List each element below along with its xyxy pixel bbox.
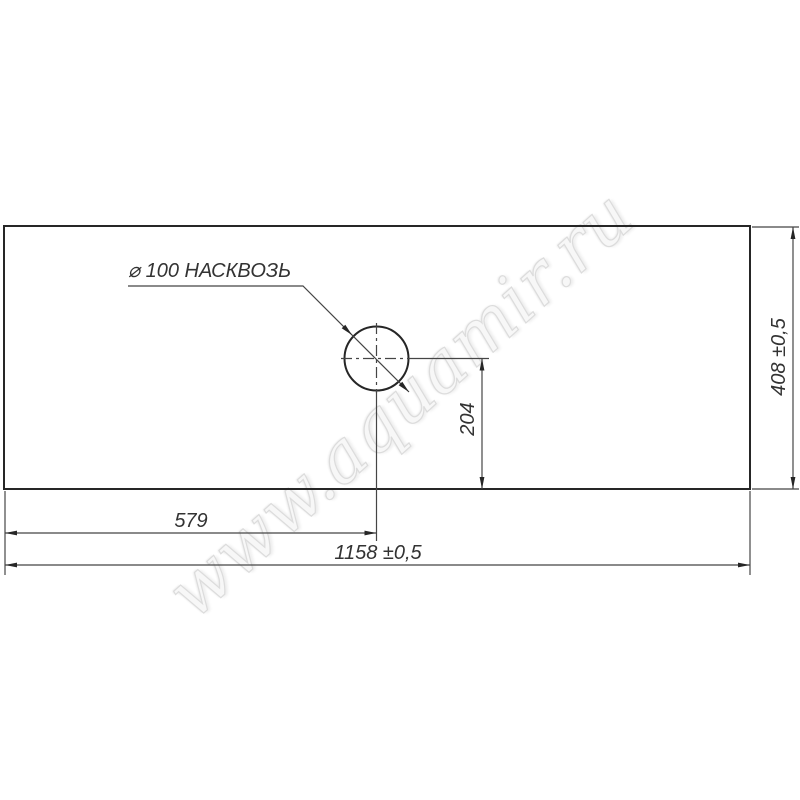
leader-line-hole-note	[128, 286, 409, 392]
hole-diameter-label: ⌀ 100 НАСКВОЗЬ	[128, 261, 291, 281]
arrow-408-top	[791, 227, 796, 239]
arrow-204-top	[480, 359, 485, 371]
arrow-408-bottom	[791, 477, 796, 489]
arrow-579-left	[5, 531, 17, 536]
arrow-1158-left	[5, 563, 17, 568]
arrow-204-bottom	[480, 477, 485, 489]
technical-drawing-page: www.aquamir.ru	[0, 0, 800, 800]
dim-label-408: 408 ±0,5	[769, 318, 789, 396]
arrow-579-right	[365, 531, 377, 536]
hole-circle	[345, 327, 409, 391]
dimension-drawing-svg	[0, 0, 800, 800]
dim-label-1158: 1158 ±0,5	[334, 543, 421, 563]
dim-label-204: 204	[458, 402, 478, 435]
dim-label-579: 579	[174, 511, 207, 531]
arrow-1158-right	[738, 563, 750, 568]
